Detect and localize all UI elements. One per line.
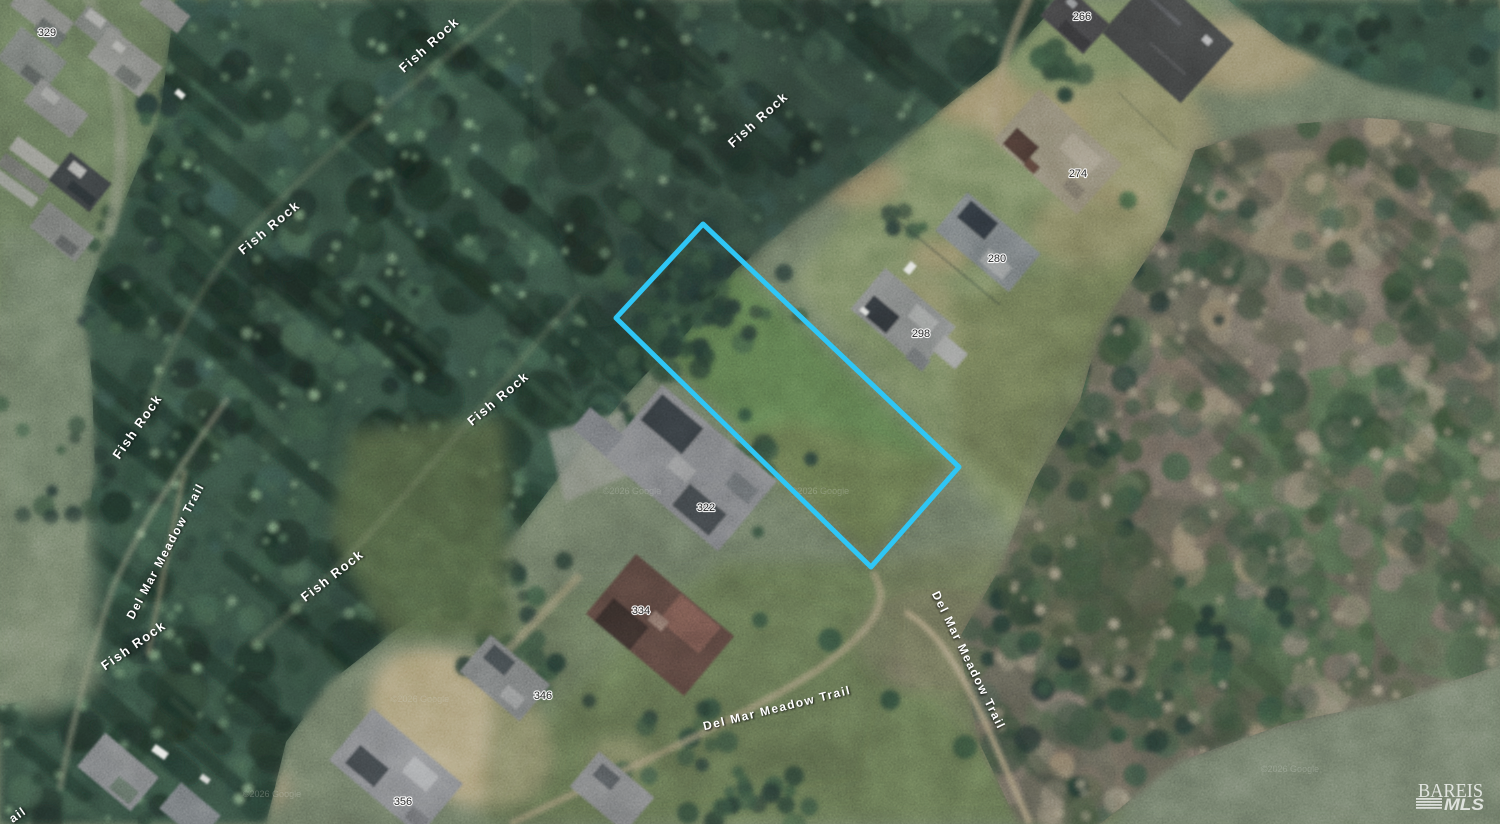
svg-text:©2026 Google: ©2026 Google (603, 486, 661, 496)
svg-text:280: 280 (988, 253, 1006, 265)
svg-text:329: 329 (38, 27, 56, 39)
svg-text:346: 346 (534, 690, 552, 702)
svg-text:©2026 Google: ©2026 Google (1261, 764, 1319, 774)
svg-text:322: 322 (697, 502, 715, 514)
svg-text:298: 298 (912, 328, 930, 340)
svg-text:©2026 Google: ©2026 Google (243, 789, 301, 799)
svg-text:356: 356 (394, 796, 412, 808)
svg-text:©2026 Google: ©2026 Google (391, 694, 449, 704)
svg-text:274: 274 (1069, 168, 1087, 180)
svg-text:MLS: MLS (1444, 795, 1485, 814)
svg-text:334: 334 (632, 605, 650, 617)
svg-text:266: 266 (1073, 11, 1091, 23)
